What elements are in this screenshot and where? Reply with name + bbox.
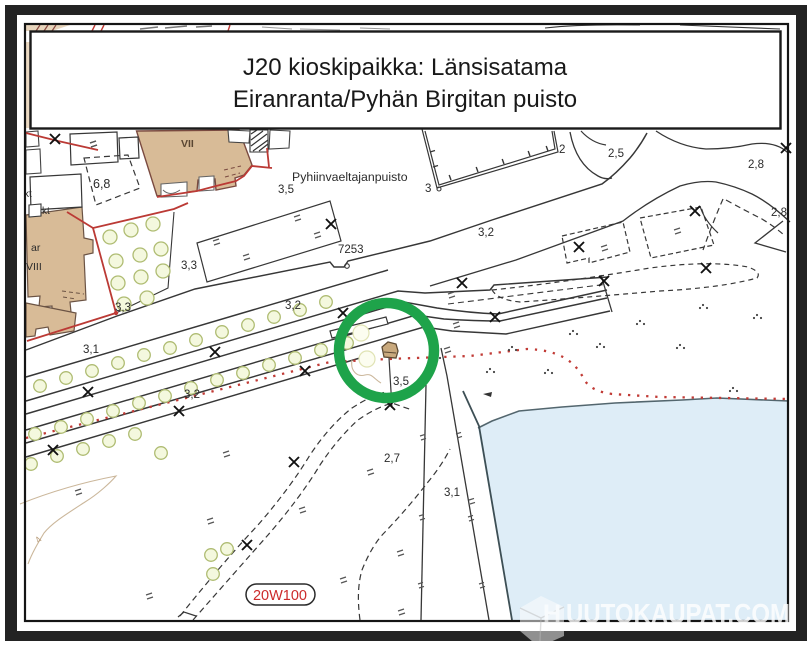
svg-text:J20 kioskipaikka: Länsisatama: J20 kioskipaikka: Länsisatama: [243, 54, 568, 81]
svg-text:H: H: [543, 600, 561, 628]
svg-text:3,2: 3,2: [184, 389, 200, 401]
svg-text:7253: 7253: [338, 244, 364, 256]
svg-text:kt: kt: [42, 206, 50, 217]
svg-text:2,5: 2,5: [608, 148, 624, 160]
svg-text:3,3: 3,3: [181, 260, 197, 272]
svg-text:UUTOKAUPAT.COM: UUTOKAUPAT.COM: [566, 598, 790, 629]
svg-text:3,5: 3,5: [393, 376, 409, 388]
svg-text:3,3: 3,3: [115, 302, 131, 314]
svg-text:ar: ar: [31, 242, 41, 254]
svg-text:Pyhiinvaeltajanpuisto: Pyhiinvaeltajanpuisto: [292, 170, 408, 184]
svg-text:2,8: 2,8: [748, 159, 764, 171]
svg-text:2: 2: [559, 144, 565, 156]
svg-text:3,5: 3,5: [278, 184, 294, 196]
svg-text:3,2: 3,2: [478, 227, 494, 239]
svg-text:2,7: 2,7: [384, 453, 400, 465]
svg-text:2,8: 2,8: [771, 207, 787, 219]
svg-text:Eiranranta/Pyhän Birgitan puis: Eiranranta/Pyhän Birgitan puisto: [233, 86, 577, 113]
svg-text:3,1: 3,1: [83, 344, 99, 356]
svg-text:3,2: 3,2: [285, 300, 301, 312]
svg-text:VII: VII: [181, 138, 194, 150]
svg-text:20W100: 20W100: [253, 588, 307, 604]
svg-text:3,1: 3,1: [444, 487, 460, 499]
svg-text:6,8: 6,8: [93, 177, 110, 191]
svg-text:3: 3: [425, 183, 431, 195]
svg-text:VIII: VIII: [26, 261, 42, 273]
